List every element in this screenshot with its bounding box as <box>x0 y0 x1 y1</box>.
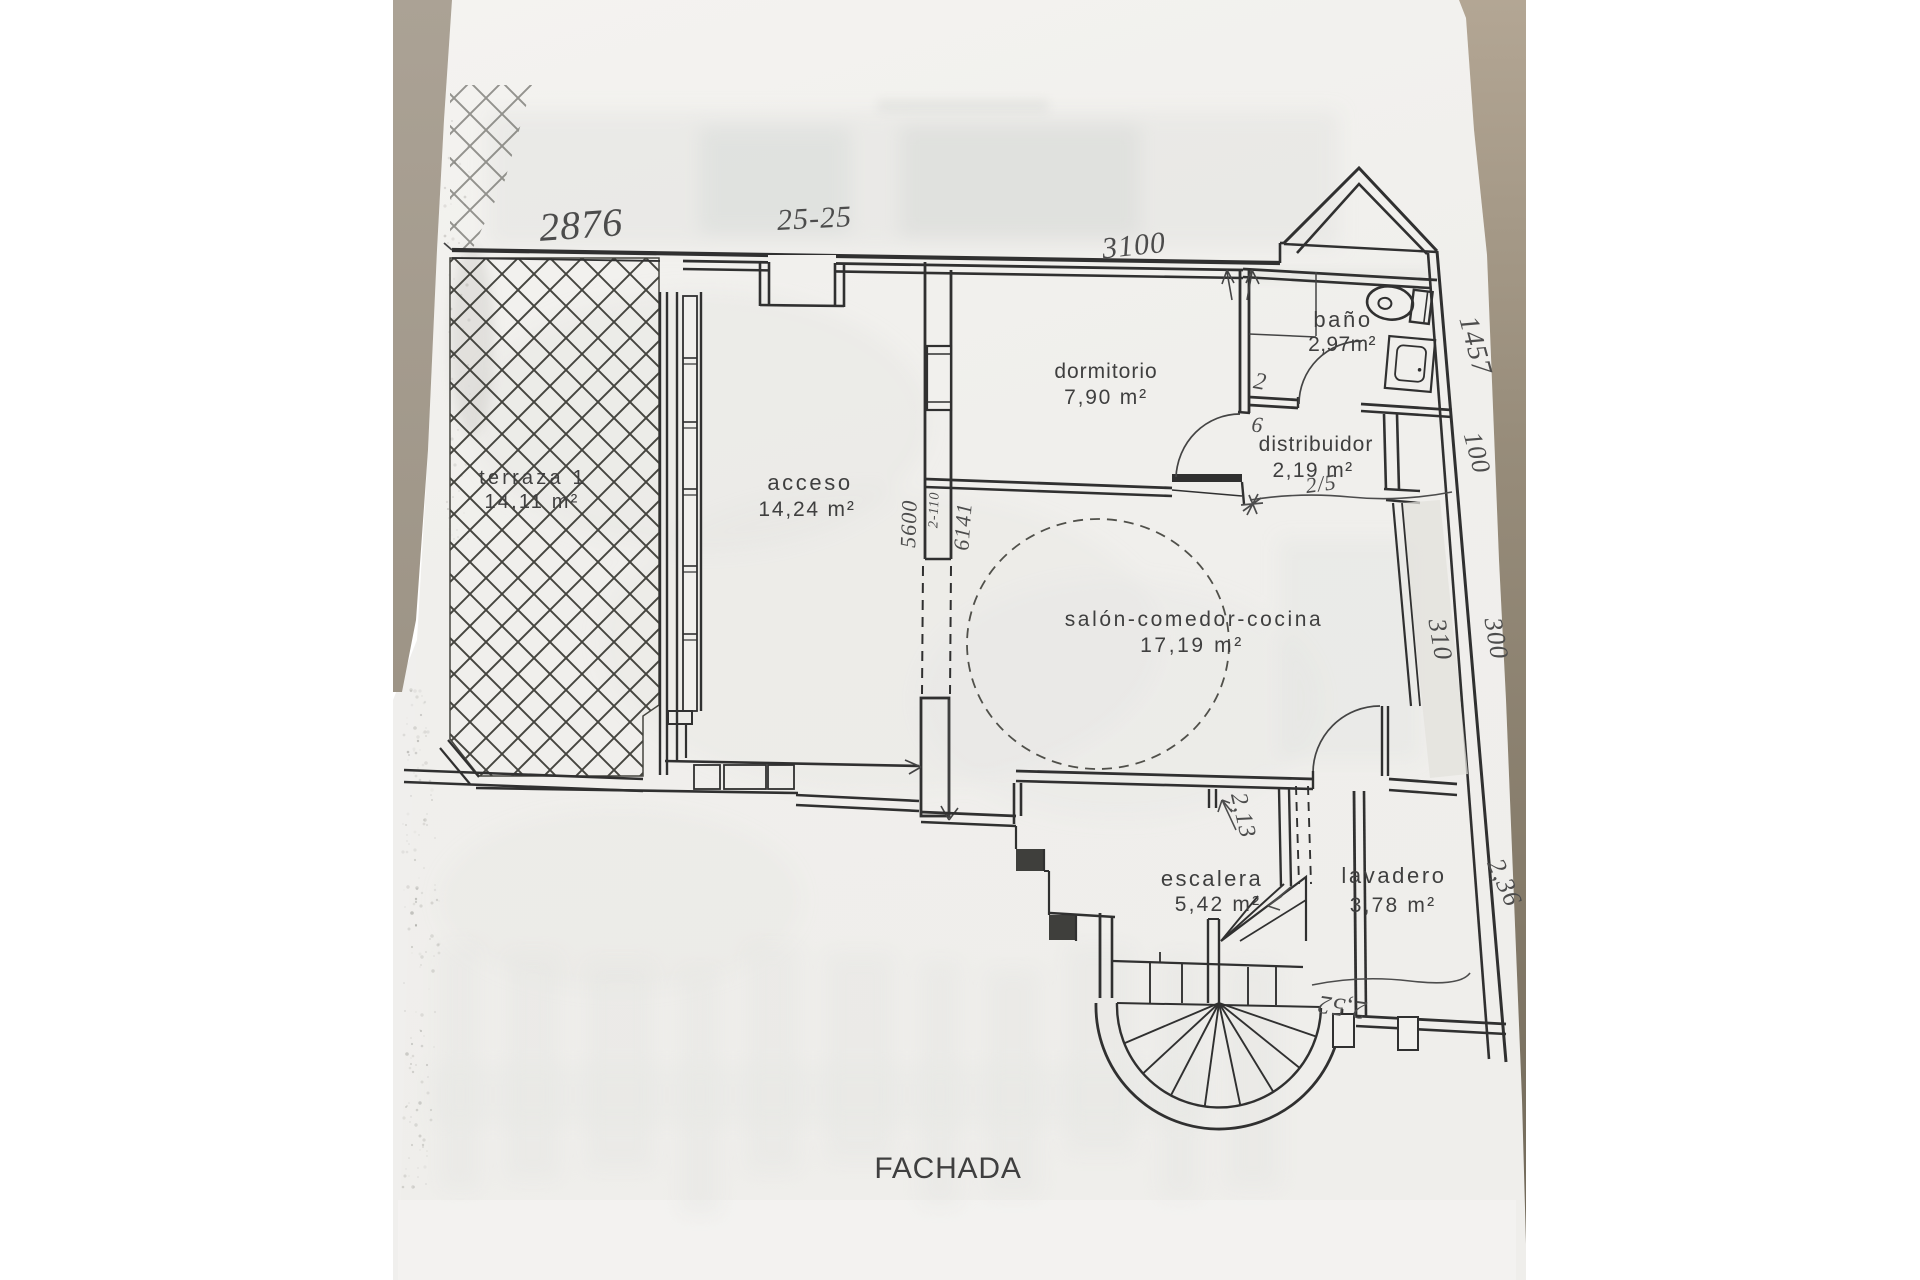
svg-text:14,24 m²: 14,24 m² <box>758 498 855 521</box>
svg-text:25-25: 25-25 <box>776 200 853 237</box>
svg-text:2/5: 2/5 <box>1304 469 1338 498</box>
svg-text:dormitorio: dormitorio <box>1054 360 1157 383</box>
svg-text:distribuidor: distribuidor <box>1259 433 1374 456</box>
svg-text:5600: 5600 <box>895 499 922 548</box>
svg-text:2876: 2876 <box>538 199 625 250</box>
svg-text:3,78 m²: 3,78 m² <box>1350 894 1437 917</box>
svg-text:acceso: acceso <box>767 470 852 495</box>
svg-text:baño: baño <box>1313 307 1372 332</box>
svg-text:FACHADA: FACHADA <box>874 1152 1021 1185</box>
svg-text:2-110: 2-110 <box>926 491 942 528</box>
svg-text:7,90 m²: 7,90 m² <box>1064 386 1148 409</box>
svg-text:salón-comedor-cocina: salón-comedor-cocina <box>1065 608 1324 631</box>
svg-text:3100: 3100 <box>1099 226 1167 266</box>
svg-text:14,11 m²: 14,11 m² <box>484 491 579 513</box>
svg-text:terraza 1: terraza 1 <box>479 467 587 489</box>
svg-text:escalera: escalera <box>1161 866 1263 891</box>
svg-text:17,19 m²: 17,19 m² <box>1140 634 1244 657</box>
svg-text:6: 6 <box>1251 412 1265 438</box>
svg-text:6141: 6141 <box>948 502 976 552</box>
svg-text:lavadero: lavadero <box>1341 863 1446 888</box>
svg-text:5,42 m²: 5,42 m² <box>1175 893 1262 916</box>
svg-text:2,97m²: 2,97m² <box>1308 333 1376 356</box>
